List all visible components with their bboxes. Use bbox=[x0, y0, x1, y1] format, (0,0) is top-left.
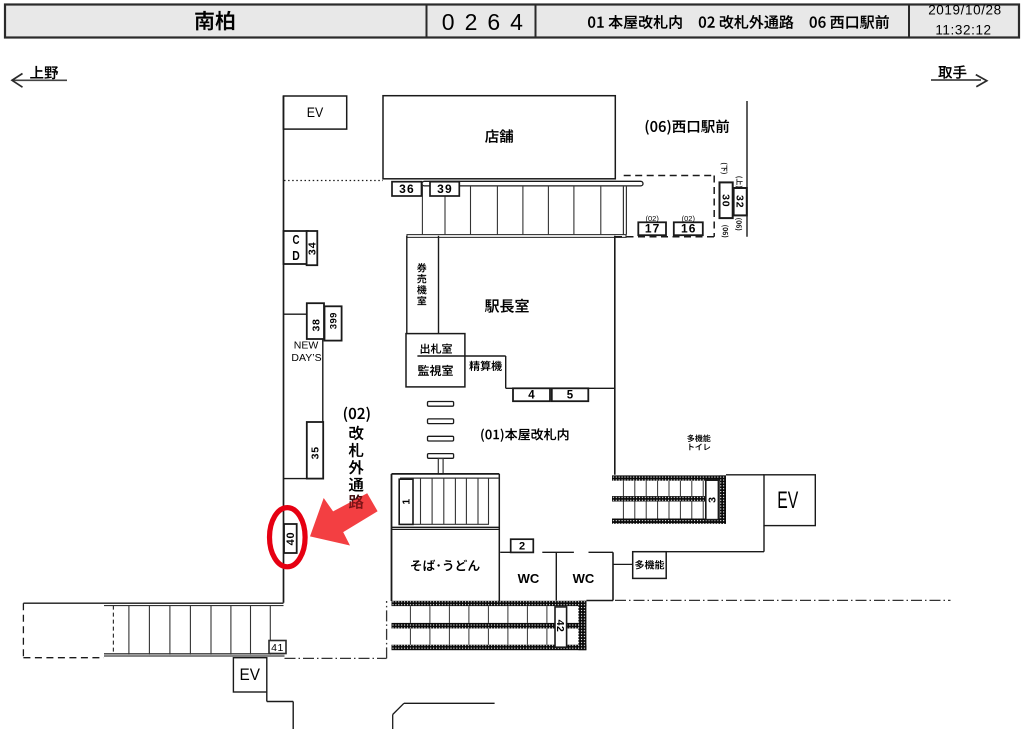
svg-text:0264: 0264 bbox=[442, 9, 533, 35]
svg-text:WC: WC bbox=[518, 571, 540, 586]
svg-text:3: 3 bbox=[707, 497, 719, 503]
svg-text:30: 30 bbox=[719, 194, 731, 207]
svg-text:399: 399 bbox=[328, 312, 339, 329]
svg-text:32: 32 bbox=[734, 195, 746, 208]
svg-text:36: 36 bbox=[399, 182, 415, 196]
svg-text:D: D bbox=[292, 249, 300, 263]
svg-text:EV: EV bbox=[777, 487, 798, 514]
svg-text:42: 42 bbox=[554, 620, 566, 633]
svg-text:17: 17 bbox=[645, 222, 660, 236]
svg-text:34: 34 bbox=[307, 241, 319, 255]
svg-text:39: 39 bbox=[437, 182, 453, 196]
svg-text:2: 2 bbox=[519, 541, 525, 553]
svg-text:2019/10/28: 2019/10/28 bbox=[928, 3, 1002, 18]
svg-text:16: 16 bbox=[681, 222, 696, 236]
svg-text:4: 4 bbox=[528, 390, 535, 402]
svg-text:NEW: NEW bbox=[294, 340, 319, 352]
svg-text:EV: EV bbox=[307, 105, 324, 120]
svg-text:38: 38 bbox=[310, 319, 322, 332]
svg-text:(02): (02) bbox=[682, 214, 696, 223]
svg-text:5: 5 bbox=[567, 390, 574, 402]
svg-text:(02): (02) bbox=[646, 214, 660, 223]
svg-text:WC: WC bbox=[573, 571, 595, 586]
svg-text:C: C bbox=[293, 233, 300, 247]
svg-text:1: 1 bbox=[401, 499, 413, 505]
svg-text:DAY’S: DAY’S bbox=[291, 352, 321, 364]
svg-text:35: 35 bbox=[310, 446, 322, 459]
svg-text:41: 41 bbox=[271, 642, 284, 654]
svg-text:40: 40 bbox=[285, 532, 297, 546]
svg-text:11:32:12: 11:32:12 bbox=[935, 23, 991, 38]
svg-text:EV: EV bbox=[240, 665, 261, 684]
